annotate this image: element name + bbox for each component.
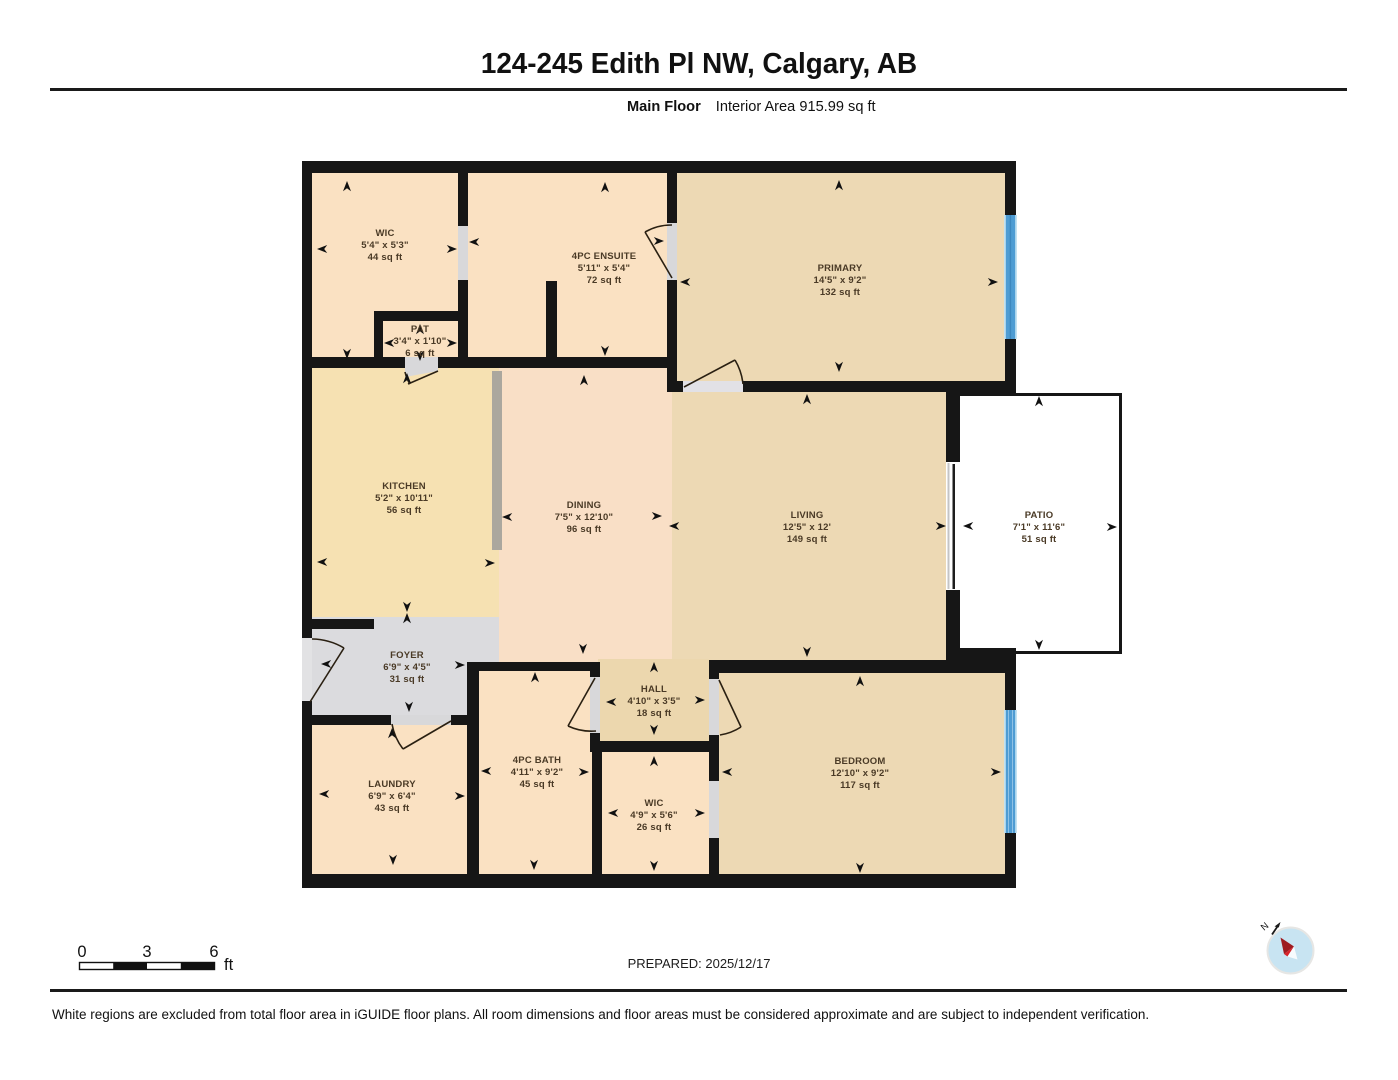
svg-text:PRIMARY: PRIMARY [818, 263, 863, 274]
svg-text:14'5" x 9'2": 14'5" x 9'2" [814, 275, 867, 286]
svg-text:ft: ft [224, 956, 234, 974]
svg-text:7'1" x 11'6": 7'1" x 11'6" [1013, 522, 1065, 533]
svg-text:51 sq ft: 51 sq ft [1022, 534, 1057, 545]
svg-text:45 sq ft: 45 sq ft [520, 779, 555, 790]
svg-text:KITCHEN: KITCHEN [382, 481, 426, 492]
svg-text:WIC: WIC [644, 798, 663, 809]
svg-text:7'5" x 12'10": 7'5" x 12'10" [555, 512, 613, 523]
svg-text:6'9" x 4'5": 6'9" x 4'5" [383, 662, 430, 673]
svg-text:4PC ENSUITE: 4PC ENSUITE [572, 251, 637, 262]
svg-text:26 sq ft: 26 sq ft [637, 822, 672, 833]
svg-text:56 sq ft: 56 sq ft [387, 505, 422, 516]
svg-text:0: 0 [77, 943, 86, 961]
svg-text:12'5" x 12': 12'5" x 12' [783, 522, 831, 533]
svg-text:5'11" x 5'4": 5'11" x 5'4" [578, 263, 630, 274]
svg-text:PATIO: PATIO [1025, 510, 1054, 521]
svg-text:PAT: PAT [411, 324, 429, 335]
svg-text:HALL: HALL [641, 684, 667, 695]
svg-text:6: 6 [209, 943, 218, 961]
svg-text:WIC: WIC [375, 228, 394, 239]
svg-text:44 sq ft: 44 sq ft [368, 252, 403, 263]
svg-text:FOYER: FOYER [390, 650, 424, 661]
svg-text:3: 3 [142, 943, 151, 961]
svg-text:72 sq ft: 72 sq ft [587, 275, 622, 286]
svg-text:12'10" x 9'2": 12'10" x 9'2" [831, 768, 889, 779]
svg-text:117 sq ft: 117 sq ft [840, 780, 880, 791]
svg-text:132 sq ft: 132 sq ft [820, 287, 861, 298]
svg-text:3'4" x 1'10": 3'4" x 1'10" [394, 336, 447, 347]
svg-text:LAUNDRY: LAUNDRY [368, 779, 416, 790]
svg-text:PREPARED: 2025/12/17: PREPARED: 2025/12/17 [628, 956, 771, 971]
svg-text:43 sq ft: 43 sq ft [375, 803, 410, 814]
svg-text:18 sq ft: 18 sq ft [637, 708, 672, 719]
svg-text:DINING: DINING [567, 500, 601, 511]
svg-text:4'9" x 5'6": 4'9" x 5'6" [630, 810, 677, 821]
svg-text:N: N [1259, 920, 1271, 933]
svg-text:BEDROOM: BEDROOM [834, 756, 885, 767]
svg-text:5'2" x 10'11": 5'2" x 10'11" [375, 493, 433, 504]
svg-text:4PC BATH: 4PC BATH [513, 755, 561, 766]
svg-text:31 sq ft: 31 sq ft [390, 674, 425, 685]
svg-text:6 sq ft: 6 sq ft [405, 348, 435, 359]
svg-text:96 sq ft: 96 sq ft [567, 524, 602, 535]
svg-text:4'11" x 9'2": 4'11" x 9'2" [511, 767, 563, 778]
svg-text:4'10" x 3'5": 4'10" x 3'5" [628, 696, 681, 707]
svg-text:5'4" x 5'3": 5'4" x 5'3" [361, 240, 408, 251]
svg-text:149 sq ft: 149 sq ft [787, 534, 828, 545]
svg-text:6'9" x 6'4": 6'9" x 6'4" [368, 791, 415, 802]
svg-text:LIVING: LIVING [791, 510, 824, 521]
